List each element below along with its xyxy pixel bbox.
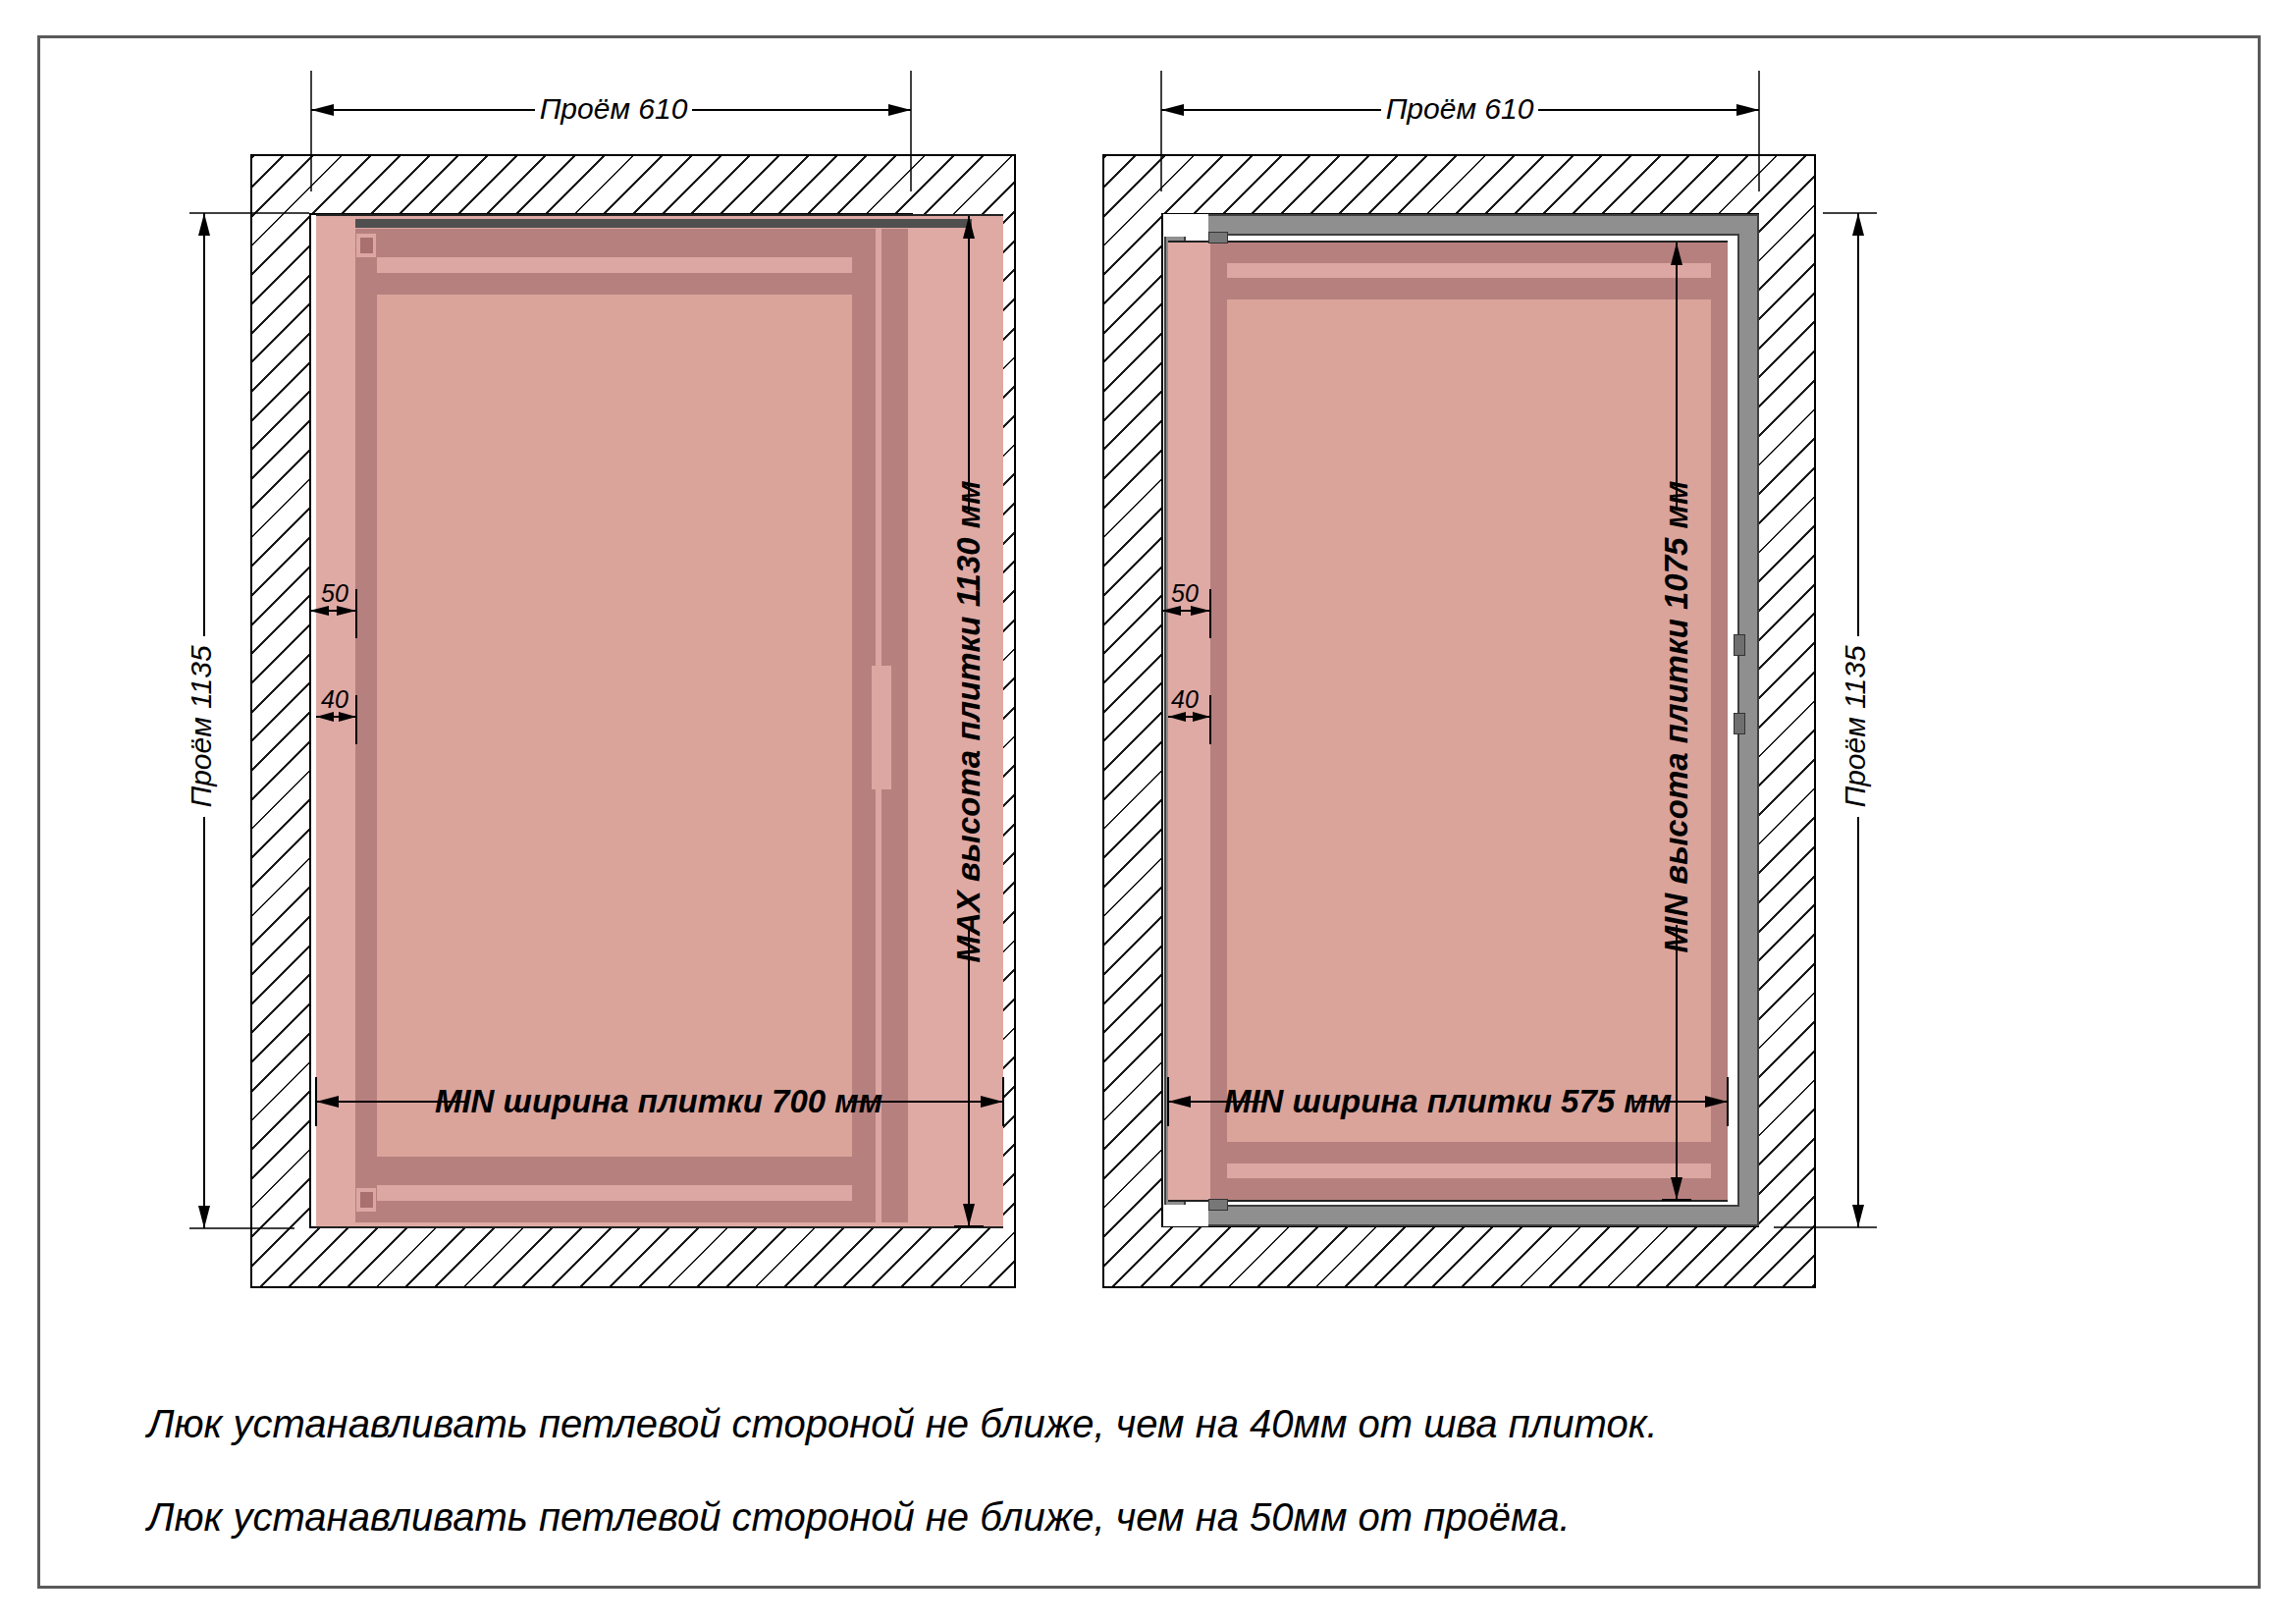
drawing-sheet: Проём 610 Проём 1135 50 40 MIN ширина пл… xyxy=(0,0,2296,1624)
left-dim-opening-width-lines xyxy=(311,71,911,191)
left-dim-tile-width: MIN ширина плитки 700 мм xyxy=(435,1085,882,1117)
right-dim-tile-width: MIN ширина плитки 575 мм xyxy=(1224,1085,1672,1117)
note-seam-offset: Люк устанавливать петлевой стороной не б… xyxy=(147,1402,1658,1446)
right-dim-tile-height: MIN высота плитки 1075 мм xyxy=(1660,481,1692,953)
right-dim-opening-height: Проём 1135 xyxy=(1841,645,1870,807)
left-dim-hinge-offset: 50 xyxy=(321,581,348,606)
right-dim-opening-width-lines xyxy=(1161,71,1759,191)
left-dim-opening-width: Проём 610 xyxy=(540,94,688,124)
right-dim-hinge-offset: 50 xyxy=(1171,581,1199,606)
left-dim-seam-offset: 40 xyxy=(321,687,348,712)
right-dim-opening-width: Проём 610 xyxy=(1386,94,1534,124)
note-opening-offset: Люк устанавливать петлевой стороной не б… xyxy=(147,1495,1571,1540)
left-dim-tile-height: MAX высота плитки 1130 мм xyxy=(952,480,985,962)
left-dim-opening-height: Проём 1135 xyxy=(187,645,216,807)
right-dim-seam-offset: 40 xyxy=(1171,687,1199,712)
dimension-lines-layer xyxy=(0,0,2296,1624)
